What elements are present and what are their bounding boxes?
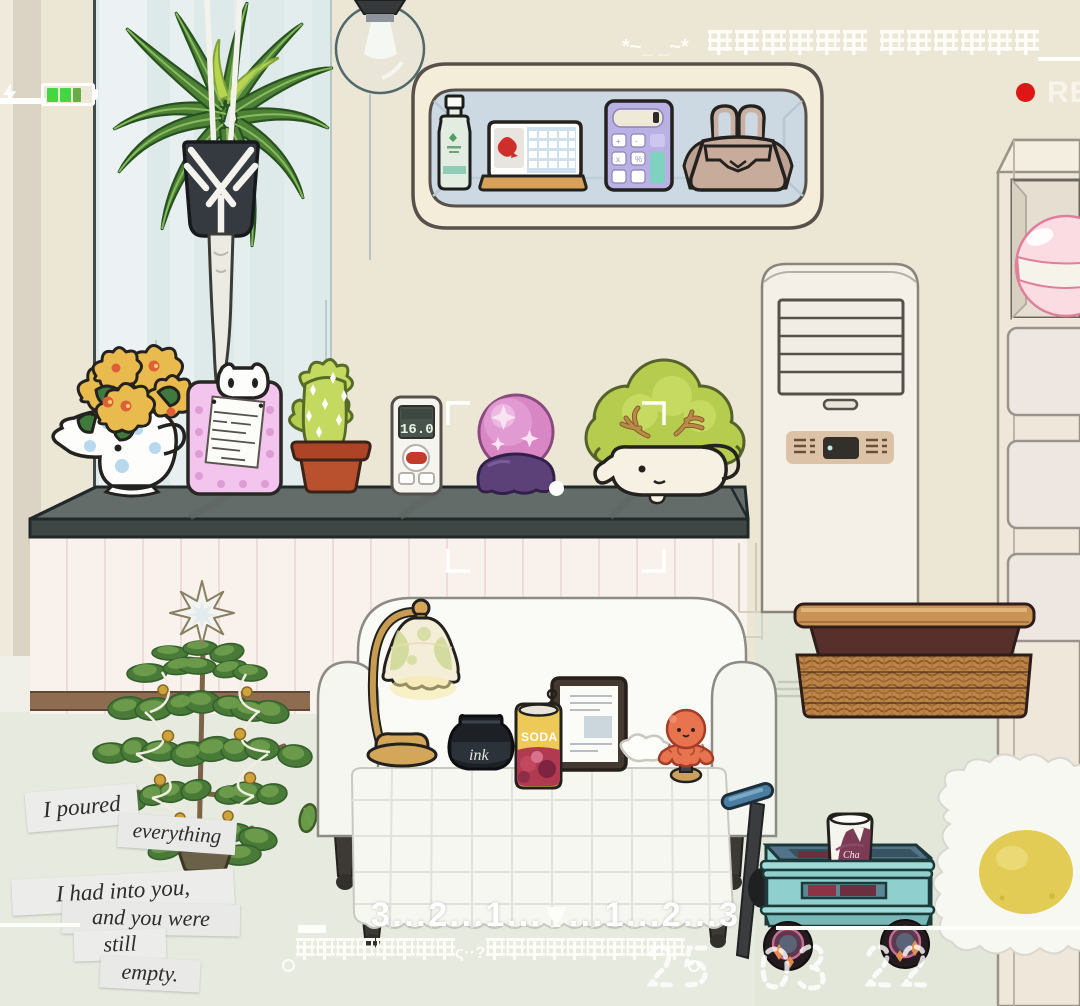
svg-text:SODA: SODA [521,730,558,744]
svg-text:+: + [616,137,621,146]
svg-text:x: x [616,155,620,164]
svg-text:16.0: 16.0 [400,422,434,438]
svg-text:ink: ink [469,747,489,764]
svg-text:-: - [635,137,638,146]
svg-text:Cha: Cha [843,850,860,861]
svg-text:%: % [635,155,642,164]
